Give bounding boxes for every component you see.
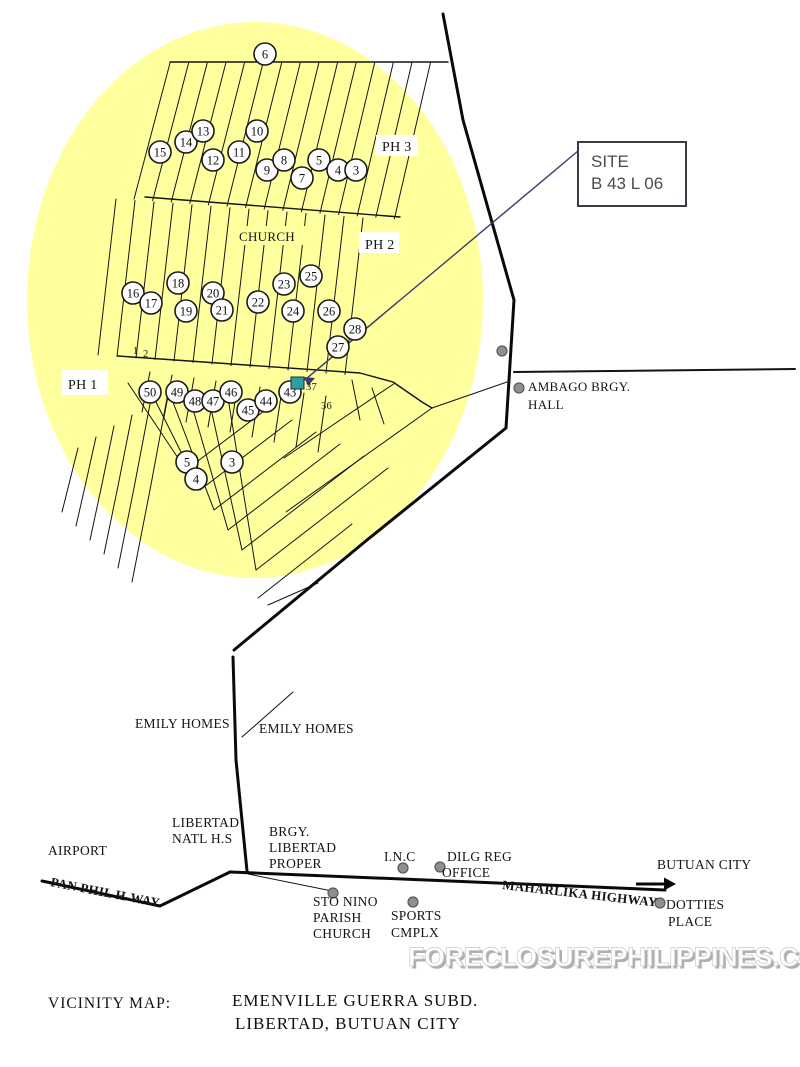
lot-marker-number: 28 xyxy=(349,323,362,337)
label-ph-3: PH 3 xyxy=(382,140,412,155)
boundary-line xyxy=(514,369,795,372)
label-libertad-natl-hs-line2: NATL H.S xyxy=(172,831,232,846)
label-maharlika-highway: MAHARLIKA HIGHWAY xyxy=(502,877,659,910)
lot-marker-number: 44 xyxy=(260,395,273,409)
label-brgy-libertad-line3: PROPER xyxy=(269,856,322,871)
lot-marker-number: 21 xyxy=(216,304,229,318)
watermark: FORECLOSUREPHILIPPINES.COM xyxy=(408,942,800,972)
lot-marker-number: 26 xyxy=(323,305,336,319)
lot-marker-number: 18 xyxy=(172,277,185,291)
site-location-marker xyxy=(291,377,304,389)
lot-marker-28: 28 xyxy=(344,318,366,340)
lot-marker-number: 19 xyxy=(180,305,193,319)
lot-marker-3: 3 xyxy=(345,159,367,181)
lot-marker-12: 12 xyxy=(202,149,224,171)
vicinity-map-canvas: 6151413121110987543161718192021222324252… xyxy=(0,0,800,1067)
lot-marker-number: 25 xyxy=(305,270,318,284)
lot-marker-number: 48 xyxy=(189,395,202,409)
poi-dot xyxy=(398,863,408,873)
caption-line1: EMENVILLE GUERRA SUBD. xyxy=(232,991,478,1010)
lot-marker-18: 18 xyxy=(167,272,189,294)
label-sto-nino-line3: CHURCH xyxy=(313,926,371,941)
small-number-2: 2 xyxy=(143,349,149,360)
site-callout-line1: SITE xyxy=(591,152,629,171)
lot-marker-number: 7 xyxy=(299,172,305,186)
label-dotties-place-line2: PLACE xyxy=(668,914,712,929)
lot-marker-number: 9 xyxy=(264,164,270,178)
lot-marker-number: 5 xyxy=(316,154,322,168)
lot-marker-15: 15 xyxy=(149,141,171,163)
road-line xyxy=(233,657,247,871)
lot-marker-number: 45 xyxy=(242,404,255,418)
lot-marker-number: 12 xyxy=(207,154,220,168)
lot-marker-11: 11 xyxy=(228,141,250,163)
label-airport: AIRPORT xyxy=(48,843,108,858)
lot-marker-number: 6 xyxy=(262,48,268,62)
lot-marker-number: 3 xyxy=(353,164,359,178)
label-ph-2: PH 2 xyxy=(365,238,395,253)
label-dilg-reg-line2: OFFICE xyxy=(442,865,490,880)
lot-marker-number: 24 xyxy=(287,305,300,319)
lot-marker-number: 20 xyxy=(207,287,220,301)
label-butuan-city: BUTUAN CITY xyxy=(657,857,751,872)
caption-line2: LIBERTAD, BUTUAN CITY xyxy=(235,1014,461,1033)
lot-marker-number: 10 xyxy=(251,125,264,139)
lot-marker-26: 26 xyxy=(318,300,340,322)
label-sports-cmplx-line2: CMPLX xyxy=(391,925,439,940)
lot-marker-23: 23 xyxy=(273,273,295,295)
label-brgy-libertad-line1: BRGY. xyxy=(269,824,310,839)
small-number-36: 36 xyxy=(321,401,332,412)
label-emily-homes-left: EMILY HOMES xyxy=(135,716,230,731)
label-ambago-brgy-line2: HALL xyxy=(528,397,564,412)
poi-dot xyxy=(497,346,507,356)
lot-marker-46: 46 xyxy=(220,381,242,403)
lot-marker-3: 3 xyxy=(221,451,243,473)
lot-marker-13: 13 xyxy=(192,120,214,142)
lot-marker-24: 24 xyxy=(282,300,304,322)
lot-marker-number: 14 xyxy=(180,136,193,150)
label-emily-homes-right: EMILY HOMES xyxy=(259,721,354,736)
lot-marker-number: 11 xyxy=(233,146,245,160)
label-inc: I.N.C xyxy=(384,849,416,864)
lot-marker-6: 6 xyxy=(254,43,276,65)
lot-marker-number: 15 xyxy=(154,146,167,160)
lot-marker-44: 44 xyxy=(255,390,277,412)
small-number-1: 1 xyxy=(133,346,139,357)
lot-marker-number: 3 xyxy=(229,456,235,470)
label-sports-cmplx-line1: SPORTS xyxy=(391,908,442,923)
label-sto-nino-line2: PARISH xyxy=(313,910,362,925)
lot-marker-number: 4 xyxy=(335,164,342,178)
label-sto-nino-line1: STO NINO xyxy=(313,894,378,909)
label-pan-phil-hway: PAN PHIL H-WAY xyxy=(49,874,161,910)
lot-marker-25: 25 xyxy=(300,265,322,287)
label-libertad-natl-hs-line1: LIBERTAD xyxy=(172,815,239,830)
lot-marker-number: 50 xyxy=(144,386,157,400)
lot-marker-number: 27 xyxy=(332,341,345,355)
lot-marker-22: 22 xyxy=(247,291,269,313)
lot-marker-number: 4 xyxy=(193,473,200,487)
label-ph-1: PH 1 xyxy=(68,378,98,393)
lot-marker-number: 13 xyxy=(197,125,210,139)
label-dotties-place-line1: DOTTIES xyxy=(666,897,724,912)
lot-marker-number: 23 xyxy=(278,278,291,292)
small-number-37: 37 xyxy=(306,382,317,393)
lot-marker-number: 8 xyxy=(281,154,287,168)
poi-dot xyxy=(514,383,524,393)
lot-marker-number: 5 xyxy=(184,456,190,470)
label-brgy-libertad-line2: LIBERTAD xyxy=(269,840,336,855)
poi-dot xyxy=(408,897,418,907)
lot-marker-number: 17 xyxy=(145,297,158,311)
vicinity-map-page: 6151413121110987543161718192021222324252… xyxy=(0,0,800,1067)
site-callout-line2: B 43 L 06 xyxy=(591,174,663,193)
lot-marker-50: 50 xyxy=(139,381,161,403)
lot-marker-10: 10 xyxy=(246,120,268,142)
lot-marker-8: 8 xyxy=(273,149,295,171)
lot-marker-number: 46 xyxy=(225,386,238,400)
lot-marker-7: 7 xyxy=(291,167,313,189)
label-dilg-reg-line1: DILG REG xyxy=(447,849,512,864)
lot-marker-number: 22 xyxy=(252,296,265,310)
lot-marker-number: 16 xyxy=(127,287,140,301)
lot-marker-21: 21 xyxy=(211,299,233,321)
label-church: CHURCH xyxy=(239,229,295,244)
lot-marker-27: 27 xyxy=(327,336,349,358)
lot-marker-4: 4 xyxy=(185,468,207,490)
lot-marker-19: 19 xyxy=(175,300,197,322)
label-ambago-brgy-line1: AMBAGO BRGY. xyxy=(528,379,630,394)
lot-marker-number: 49 xyxy=(171,386,184,400)
lot-marker-number: 47 xyxy=(207,395,220,409)
site-callout-box: SITE B 43 L 06 xyxy=(578,142,686,206)
caption-label: VICINITY MAP: xyxy=(48,995,171,1012)
lot-marker-17: 17 xyxy=(140,292,162,314)
